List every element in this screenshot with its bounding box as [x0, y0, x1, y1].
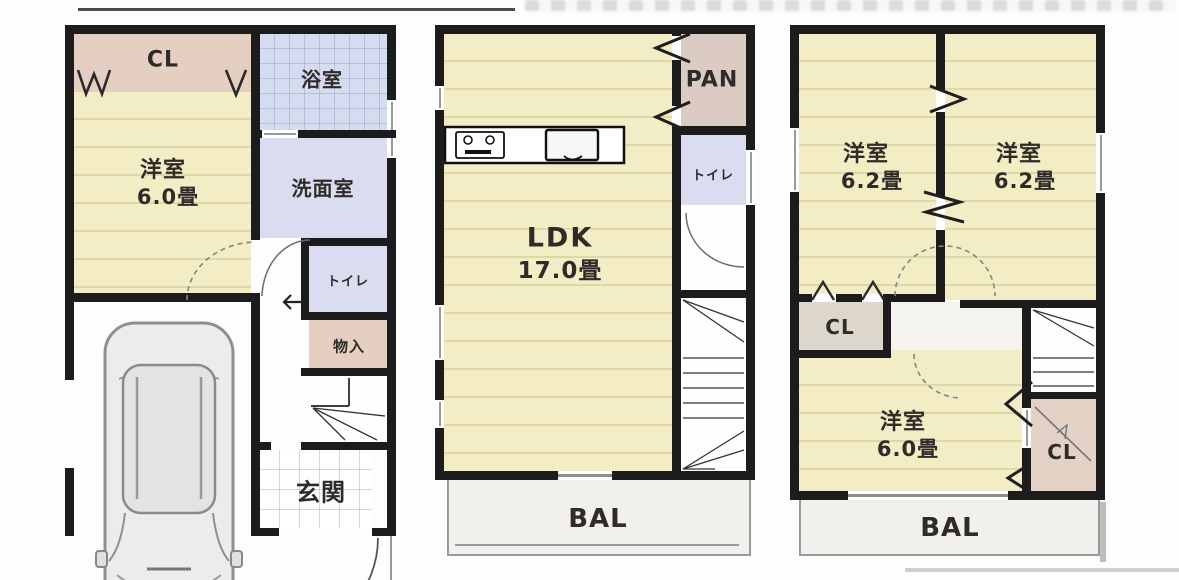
wall-segment — [936, 112, 945, 197]
wall-segment — [790, 294, 812, 302]
label-western-3f-bottom-size: 6.0畳 — [877, 433, 939, 463]
stairs-3f — [1031, 308, 1096, 392]
wall-segment — [790, 25, 1105, 34]
floorplan-3f: 洋室 6.2畳 洋室 6.2畳 CL 洋室 6.0畳 CL BAL — [0, 0, 1179, 580]
wall-segment — [836, 294, 862, 302]
label-western-3f-right-name: 洋室 — [996, 136, 1042, 168]
wall-segment — [790, 350, 891, 358]
opening-zigzag — [920, 190, 970, 232]
opening-zigzag — [1000, 380, 1034, 428]
window — [790, 128, 799, 192]
bifold-door-symbol — [860, 280, 886, 302]
balcony-shadow — [1100, 502, 1106, 562]
label-closet-3f-right: CL — [1047, 440, 1076, 464]
wall-segment — [883, 294, 891, 358]
label-western-3f-bottom-name: 洋室 — [880, 404, 926, 436]
label-western-3f-left-name: 洋室 — [843, 136, 889, 168]
door-arc — [912, 352, 964, 400]
door-arc — [893, 242, 997, 298]
opening-zigzag — [1002, 462, 1032, 494]
label-western-3f-right-size: 6.2畳 — [994, 165, 1056, 195]
wall-segment — [1022, 392, 1105, 399]
wall-segment — [936, 25, 945, 90]
opening-zigzag — [926, 84, 970, 114]
wall-segment — [790, 25, 799, 500]
balcony-shadow — [905, 568, 1179, 572]
wall-segment — [960, 300, 1105, 308]
label-closet-3f-left: CL — [825, 315, 854, 339]
floorplan-image: CL 浴室 洋室 6.0畳 洗面室 トイレ 物入 玄関 — [0, 0, 1179, 580]
label-western-3f-left-size: 6.2畳 — [841, 165, 903, 195]
bifold-door-symbol — [810, 280, 836, 302]
wall-segment — [1096, 25, 1105, 500]
balcony-slider-door — [848, 491, 1008, 500]
window — [1096, 133, 1105, 193]
label-balcony-3f: BAL — [920, 513, 980, 543]
hallway-3f — [891, 302, 1022, 350]
